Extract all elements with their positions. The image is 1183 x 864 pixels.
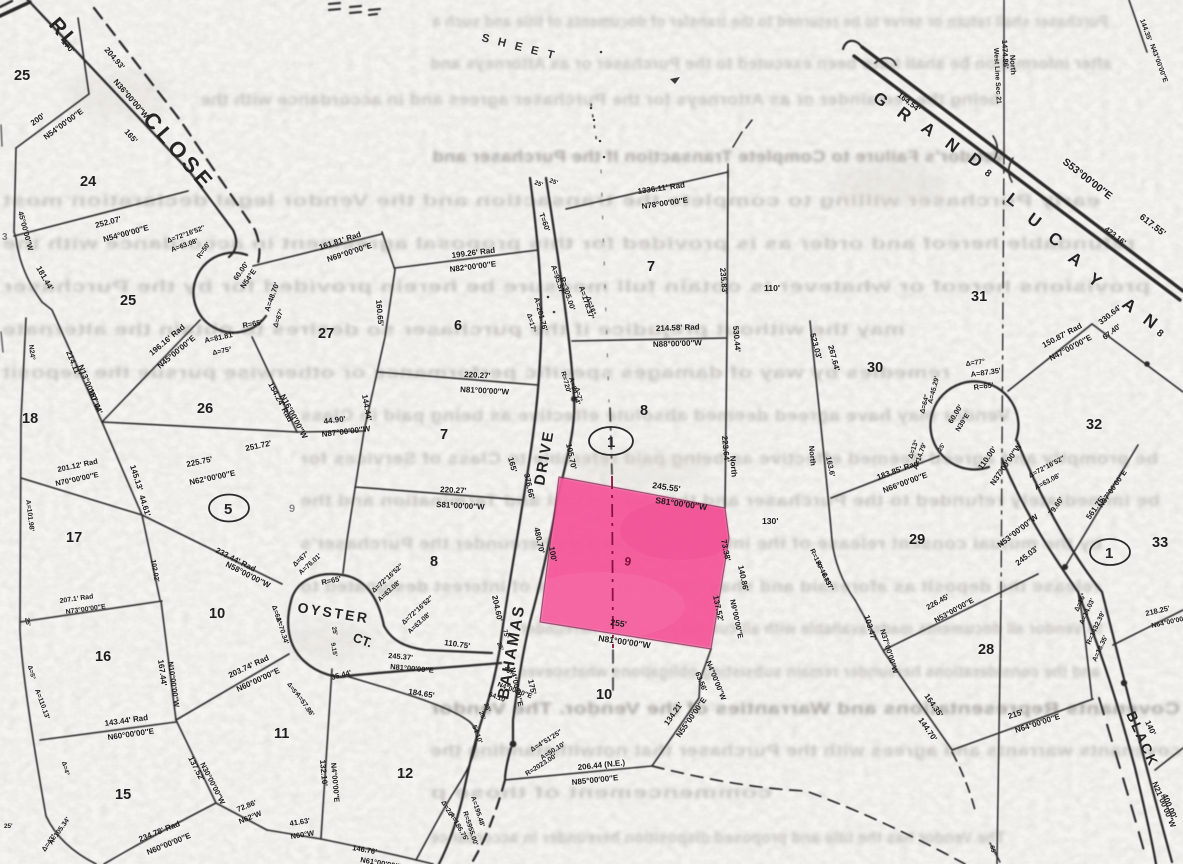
svg-text:18: 18 — [22, 411, 38, 427]
svg-text:27: 27 — [318, 326, 334, 342]
svg-text:110': 110' — [764, 283, 780, 293]
svg-text:7: 7 — [647, 259, 655, 275]
svg-text:220.27': 220.27' — [440, 485, 467, 495]
svg-text:25: 25 — [120, 293, 136, 309]
svg-text:16: 16 — [95, 649, 111, 665]
svg-text:214.58' Rad: 214.58' Rad — [656, 322, 700, 333]
svg-text:130': 130' — [762, 516, 778, 526]
svg-text:1: 1 — [1105, 545, 1113, 562]
svg-text:220.27': 220.27' — [464, 370, 491, 380]
svg-text:N88°00′00″W: N88°00′00″W — [653, 338, 703, 349]
svg-text:5: 5 — [224, 501, 232, 518]
svg-text:8: 8 — [640, 403, 648, 419]
svg-text:7: 7 — [440, 427, 448, 443]
svg-text:North: North — [1008, 55, 1018, 76]
svg-text:17: 17 — [66, 530, 82, 546]
svg-text:8: 8 — [430, 554, 438, 570]
svg-text:25: 25 — [14, 68, 30, 84]
svg-text:3: 3 — [2, 232, 8, 243]
svg-text:6: 6 — [454, 318, 462, 334]
svg-text:9: 9 — [289, 503, 295, 515]
svg-text:25': 25' — [4, 823, 13, 830]
svg-text:32: 32 — [1086, 417, 1102, 433]
svg-text:15: 15 — [115, 787, 131, 803]
svg-text:North: North — [807, 445, 818, 466]
svg-text:24: 24 — [80, 174, 96, 190]
svg-text:1: 1 — [607, 434, 615, 451]
svg-text:31: 31 — [971, 289, 987, 305]
svg-text:33: 33 — [1152, 535, 1168, 551]
svg-text:30: 30 — [867, 360, 883, 376]
svg-text:28: 28 — [978, 642, 994, 658]
svg-text:29: 29 — [909, 532, 925, 548]
svg-text:North: North — [728, 455, 739, 477]
svg-text:11: 11 — [274, 726, 289, 742]
svg-text:12: 12 — [397, 766, 413, 782]
svg-text:26: 26 — [197, 401, 213, 417]
svg-text:10: 10 — [596, 687, 612, 703]
svg-text:10: 10 — [209, 606, 225, 622]
